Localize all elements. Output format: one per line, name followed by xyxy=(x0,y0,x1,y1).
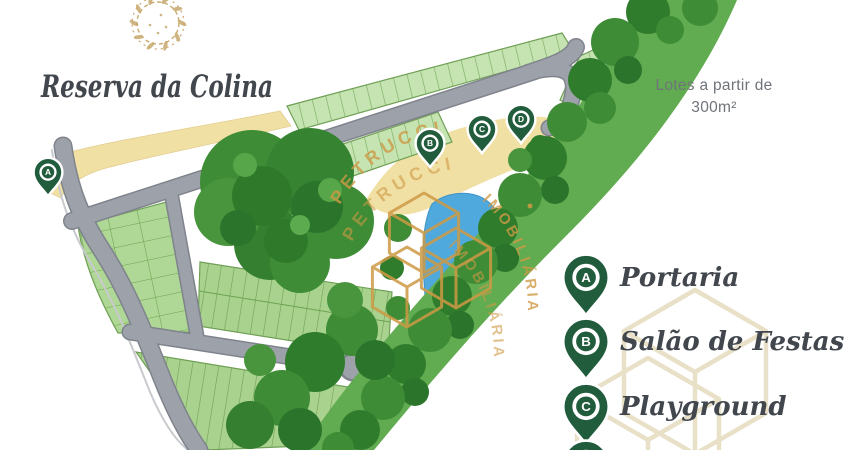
svg-text:A: A xyxy=(45,167,51,177)
svg-text:Lotes a partir de: Lotes a partir de xyxy=(655,77,772,94)
legend-label-playground: Playground xyxy=(619,392,787,422)
site-plan-svg: PETRUCCI PETRUCCI IMOBILIÁRIA IMOBILIÁRI… xyxy=(0,0,850,450)
svg-text:300m²: 300m² xyxy=(691,99,736,116)
legend-label-portaria: Portaria xyxy=(619,263,739,293)
svg-text:D: D xyxy=(518,114,524,124)
svg-text:B: B xyxy=(427,138,433,148)
development-title: Reserva da Colina xyxy=(40,69,273,105)
svg-text:C: C xyxy=(479,124,485,134)
legend-label-salao: Salão de Festas xyxy=(620,327,845,357)
svg-text:B: B xyxy=(581,334,591,349)
site-plan-image: PETRUCCI PETRUCCI IMOBILIÁRIA IMOBILIÁRI… xyxy=(0,0,850,450)
svg-text:C: C xyxy=(581,399,591,414)
svg-text:A: A xyxy=(581,270,591,285)
